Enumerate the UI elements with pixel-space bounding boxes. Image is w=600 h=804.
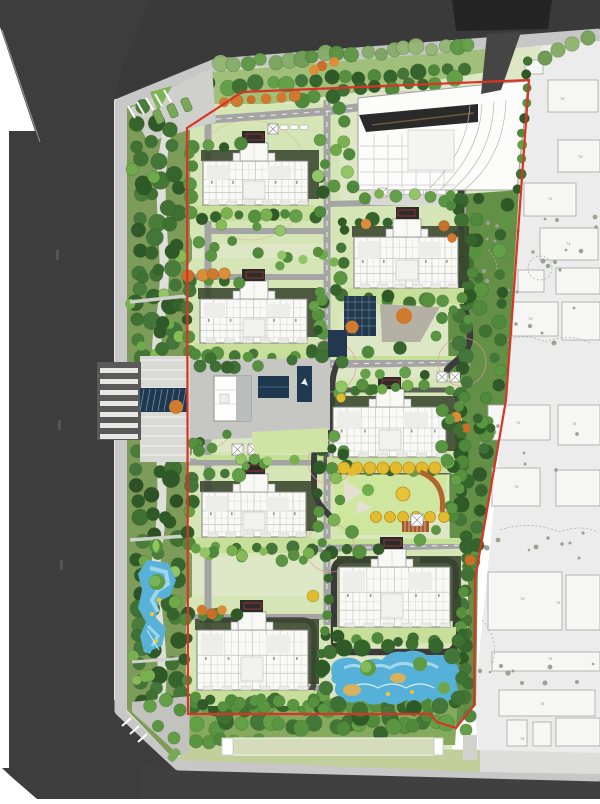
svg-text:74: 74: [514, 484, 519, 489]
svg-text:74: 74: [520, 596, 525, 601]
svg-text:74: 74: [540, 701, 545, 706]
svg-text:74: 74: [528, 316, 533, 321]
svg-text:74: 74: [548, 656, 553, 661]
svg-text:74: 74: [548, 196, 553, 201]
svg-text:74: 74: [520, 736, 525, 741]
svg-text:74: 74: [578, 154, 583, 159]
svg-text:74: 74: [566, 241, 571, 246]
svg-text:74: 74: [516, 420, 521, 425]
svg-text:74: 74: [556, 600, 561, 605]
svg-text:74: 74: [572, 421, 577, 426]
svg-text:74: 74: [560, 96, 565, 101]
